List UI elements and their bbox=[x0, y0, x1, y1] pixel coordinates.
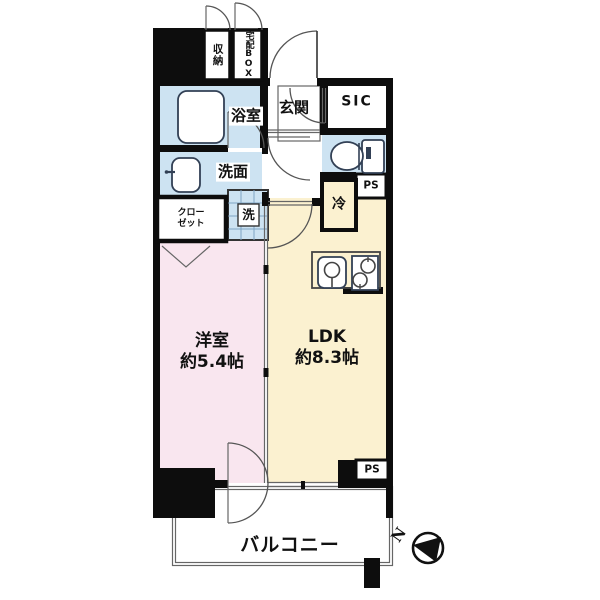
balcony-label: バルコニー bbox=[240, 534, 340, 558]
floor-plan-drawing bbox=[0, 0, 600, 600]
pipe-space-bottom-label: PS bbox=[364, 463, 379, 476]
delivery-box-label: 宅配BOX bbox=[242, 31, 253, 79]
entrance-label: 玄関 bbox=[279, 99, 309, 118]
floor-plan: 収納 宅配BOX 玄関 SIC PS 冷 浴室 洗面 洗 クロー ゼット 洋室 … bbox=[0, 0, 600, 600]
washer-label: 洗 bbox=[242, 207, 255, 223]
kitchen-sink-icon bbox=[318, 257, 346, 288]
bathtub-icon bbox=[178, 91, 224, 143]
entrance-door-arc bbox=[270, 31, 317, 78]
stove-icon bbox=[352, 256, 378, 290]
compass-icon bbox=[413, 533, 443, 563]
room-divider bbox=[264, 204, 269, 483]
western-room-label: 洋室 約5.4帖 bbox=[180, 331, 244, 374]
closet-label: クロー ゼット bbox=[177, 208, 204, 231]
ldk-balcony-window bbox=[268, 481, 340, 489]
delivery-door-arc bbox=[235, 3, 262, 30]
pipe-space-top-label: PS bbox=[363, 179, 378, 192]
shoe-closet-label: SIC bbox=[341, 93, 373, 111]
ldk-label: LDK 約8.3帖 bbox=[295, 327, 359, 370]
hall-door-arc bbox=[268, 138, 310, 180]
bathroom-label: 浴室 bbox=[229, 107, 263, 126]
refrigerator-label: 冷 bbox=[332, 196, 346, 214]
washroom-label: 洗面 bbox=[216, 163, 250, 182]
storage-door-arc bbox=[206, 6, 230, 30]
storage-label: 収納 bbox=[210, 44, 223, 67]
